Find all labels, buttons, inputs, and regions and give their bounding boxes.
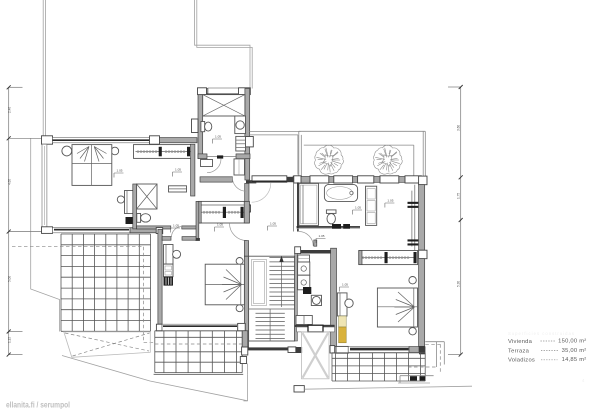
svg-text:5.30: 5.30 [456,281,460,287]
svg-text:1.05: 1.05 [342,283,348,287]
svg-text:14,85 m²: 14,85 m² [562,357,587,363]
svg-text:2.40: 2.40 [8,107,12,113]
svg-text:1.05: 1.05 [387,199,393,203]
svg-text:1.05: 1.05 [217,223,223,227]
svg-text:Terraza: Terraza [508,348,530,354]
svg-text:1.05: 1.05 [215,135,221,139]
svg-text:1.05: 1.05 [117,169,123,173]
svg-text:1.05: 1.05 [175,168,181,172]
svg-text:Superficies construidas: Superficies construidas [508,331,574,336]
svg-text:3.60: 3.60 [456,125,460,131]
svg-text:5.00: 5.00 [8,276,12,282]
svg-text:4.65: 4.65 [8,179,12,185]
svg-text:150,00 m²: 150,00 m² [558,339,586,345]
svg-text:4: 4 [582,378,585,383]
svg-text:1.15: 1.15 [8,337,12,343]
svg-text:35,00 m²: 35,00 m² [562,348,587,354]
svg-text:Voladizos: Voladizos [508,358,535,364]
svg-text:1.75: 1.75 [456,193,460,199]
svg-text:Vivienda: Vivienda [508,339,533,345]
svg-text:ellanita.fi / serumpol: ellanita.fi / serumpol [6,401,70,410]
svg-text:1.05: 1.05 [355,206,361,210]
svg-text:1.05: 1.05 [270,222,276,226]
svg-text:1.05: 1.05 [173,224,179,228]
svg-text:1.05: 1.05 [319,234,325,238]
